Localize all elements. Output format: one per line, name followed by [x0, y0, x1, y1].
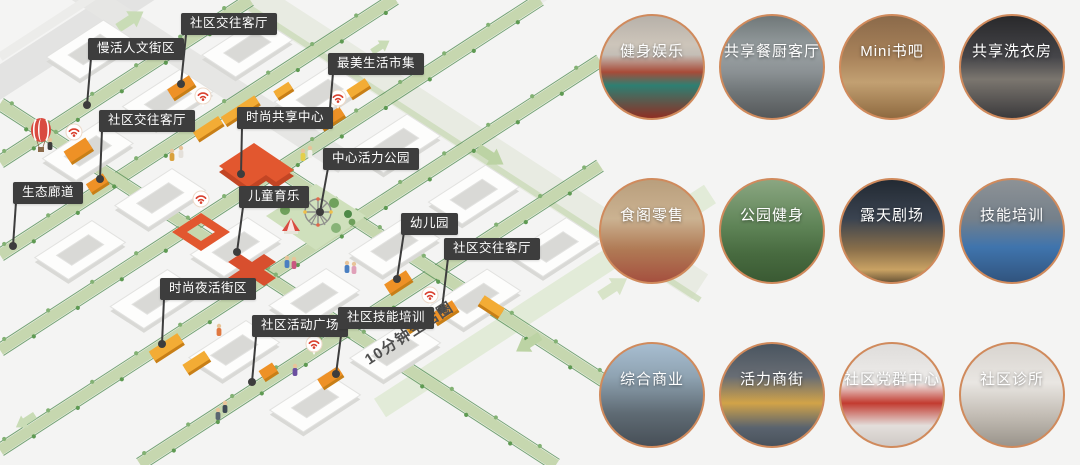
gallery-photo-party-center: 社区党群中心: [839, 342, 945, 448]
map-callout: 时尚共享中心: [237, 107, 333, 129]
gallery-photo-commerce: 综合商业: [599, 342, 705, 448]
map-callout: 社区交往客厅: [99, 110, 195, 132]
community-planning-infographic: 社区交往客厅 慢活人文街区 社区交往客厅 最美生活市集 时尚共享中心 中心活力公…: [0, 0, 1080, 465]
map-callout: 儿童育乐: [239, 186, 309, 208]
gallery-photo-open-theater: 露天剧场: [839, 178, 945, 284]
map-callout: 社区交往客厅: [181, 13, 277, 35]
map-callout: 时尚夜活街区: [160, 278, 256, 300]
map-callout: 社区活动广场: [252, 315, 348, 337]
map-callout: 社区交往客厅: [444, 238, 540, 260]
gallery-photo-park-fitness: 公园健身: [719, 178, 825, 284]
map-callout: 生态廊道: [13, 182, 83, 204]
map-callout: 慢活人文街区: [88, 38, 184, 60]
gallery-photo-clinic: 社区诊所: [959, 342, 1065, 448]
gallery-photo-vibrant-street: 活力商街: [719, 342, 825, 448]
gallery-photo-fitness: 健身娱乐: [599, 14, 705, 120]
gallery-photo-shared-kitchen: 共享餐厨客厅: [719, 14, 825, 120]
photo-gallery: 健身娱乐 共享餐厨客厅 Mini书吧 共享洗衣房 食阁零售 公园健身 露天剧场 …: [599, 14, 1065, 448]
map-callout: 中心活力公园: [323, 148, 419, 170]
map-callout: 最美生活市集: [328, 53, 424, 75]
gallery-photo-mini-bookbar: Mini书吧: [839, 14, 945, 120]
gallery-photo-laundry: 共享洗衣房: [959, 14, 1065, 120]
gallery-photo-food-court: 食阁零售: [599, 178, 705, 284]
map-callout: 幼儿园: [401, 213, 458, 235]
gallery-photo-skill-training: 技能培训: [959, 178, 1065, 284]
map-callout: 社区技能培训: [338, 307, 434, 329]
